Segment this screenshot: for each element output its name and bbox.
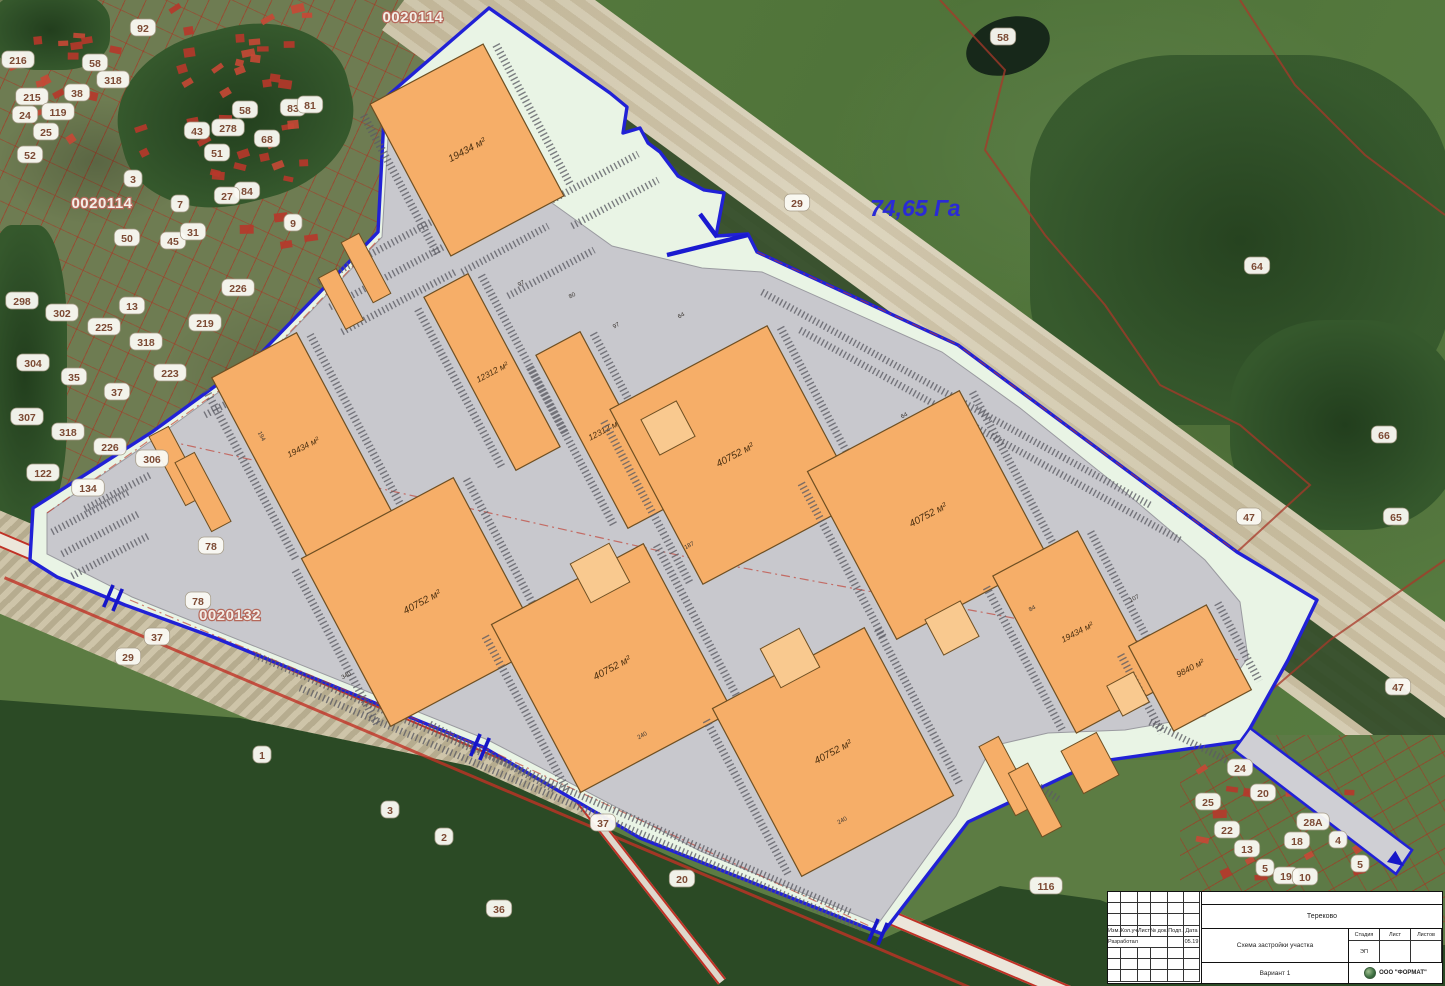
stage-grid: Стадия Лист Листов ЭП xyxy=(1349,929,1442,962)
revision-cell xyxy=(1184,892,1200,903)
parcel-number-bubble: 122 xyxy=(27,464,60,481)
parcel-number-bubble: 78 xyxy=(198,537,223,554)
parcel-number-bubble: 18 xyxy=(1284,832,1309,849)
house xyxy=(183,26,194,36)
parcel-number: 116 xyxy=(1038,881,1055,893)
house xyxy=(1245,856,1255,865)
house xyxy=(249,38,261,45)
parcel-number: 43 xyxy=(191,126,203,138)
parcel-number-bubble: 5 xyxy=(1256,859,1274,876)
house xyxy=(212,171,225,180)
revision-cell xyxy=(1138,970,1151,981)
parcel-number: 318 xyxy=(104,75,122,87)
parcel-number-bubble: 35 xyxy=(61,368,86,385)
parcel-number-bubble: 29 xyxy=(784,194,809,211)
parcel-number: 28А xyxy=(1303,817,1323,829)
parcel-number-bubble: 278 xyxy=(212,119,245,136)
house xyxy=(109,45,122,54)
house xyxy=(233,162,246,171)
revision-header: Дата xyxy=(1184,926,1200,937)
parcel-number-bubble: 47 xyxy=(1236,508,1261,525)
house xyxy=(1195,836,1209,844)
revision-cell xyxy=(1184,959,1200,970)
revision-cell xyxy=(1121,903,1138,914)
parcel-number-bubble: 28А xyxy=(1297,813,1330,830)
parcel-number: 37 xyxy=(111,387,123,399)
revision-cell xyxy=(1108,970,1121,981)
parcel-number-bubble: 226 xyxy=(222,279,255,296)
revision-cell xyxy=(1151,914,1168,925)
parcel-number-bubble: 29 xyxy=(115,648,140,665)
parcel-number-bubble: 5 xyxy=(1351,855,1369,872)
parcel-number-bubble: 37 xyxy=(144,628,169,645)
parcel-number: 24 xyxy=(1234,763,1246,775)
house xyxy=(219,87,232,99)
parcel-number: 37 xyxy=(597,818,609,830)
revision-cell xyxy=(1184,970,1200,981)
parcel-number: 226 xyxy=(101,442,119,454)
parcel-number-bubble: 119 xyxy=(42,103,75,120)
parcel-number-bubble: 20 xyxy=(1250,784,1275,801)
parcel-number-bubble: 302 xyxy=(46,304,79,321)
parcel-number-bubble: 58 xyxy=(990,28,1015,45)
revision-header: № док. xyxy=(1151,926,1168,937)
revision-header: Лист xyxy=(1138,926,1151,937)
parcel-number-bubble: 58 xyxy=(232,101,257,118)
parcel-number: 20 xyxy=(676,874,688,886)
sheet-label: Лист xyxy=(1380,929,1411,940)
parcel-number: 10 xyxy=(1299,872,1311,884)
house xyxy=(183,47,195,58)
parcel-number: 58 xyxy=(997,32,1009,44)
revision-cell xyxy=(1168,948,1184,959)
revision-cell xyxy=(1138,948,1151,959)
parcel-number-bubble: 226 xyxy=(94,438,127,455)
revision-cell xyxy=(1184,948,1200,959)
house xyxy=(181,77,193,88)
parcel-number-bubble: 58 xyxy=(82,54,107,71)
house xyxy=(290,3,305,14)
parcel-number: 9 xyxy=(290,218,296,230)
revision-cell xyxy=(1151,903,1168,914)
cadastral-quarter-label: 0020114 xyxy=(382,9,443,26)
parcel-number: 65 xyxy=(1390,512,1402,524)
parcel-number-bubble: 223 xyxy=(154,364,187,381)
parcel-number-bubble: 304 xyxy=(17,354,50,371)
house xyxy=(176,63,188,74)
variant-label: Вариант 1 xyxy=(1202,963,1349,983)
sheet-value xyxy=(1380,941,1411,962)
parcel-number: 78 xyxy=(192,596,204,608)
house xyxy=(240,225,254,234)
parcel-number: 22 xyxy=(1221,825,1233,837)
revision-cell xyxy=(1168,914,1184,925)
parcel-number: 304 xyxy=(24,358,42,370)
house xyxy=(271,160,284,171)
parcel-number-bubble: 225 xyxy=(88,318,121,335)
sheets-value xyxy=(1411,941,1442,962)
sheets-label: Листов xyxy=(1411,929,1442,940)
revision-cell xyxy=(1184,914,1200,925)
parcel-number: 278 xyxy=(219,123,237,135)
title-block-revision-grid: Изм.Кол.учЛист№ док.Подп.ДатаРазработал0… xyxy=(1108,892,1202,983)
house xyxy=(65,133,77,144)
house xyxy=(257,46,269,51)
house xyxy=(168,3,181,14)
parcel-number: 25 xyxy=(1202,797,1214,809)
parcel-number: 58 xyxy=(239,105,251,117)
house xyxy=(70,41,83,50)
house xyxy=(211,63,224,74)
parcel-number: 298 xyxy=(13,296,31,308)
parcel-number: 1 xyxy=(259,750,265,762)
parcel-number-bubble: 66 xyxy=(1371,426,1396,443)
house xyxy=(304,234,318,242)
house xyxy=(1219,867,1232,879)
house xyxy=(262,79,272,88)
parcel-number: 18 xyxy=(1291,836,1303,848)
cadastral-line xyxy=(1240,0,1445,215)
revision-cell xyxy=(1151,892,1168,903)
parcel-number-bubble: 318 xyxy=(130,333,163,350)
house xyxy=(260,13,275,25)
house xyxy=(1213,809,1227,818)
parcel-number-bubble: 13 xyxy=(1234,840,1259,857)
parcel-number-bubble: 38 xyxy=(64,84,89,101)
house xyxy=(235,34,244,43)
revision-cell xyxy=(1121,959,1138,970)
parcel-number: 13 xyxy=(126,301,138,313)
revision-cell xyxy=(1151,948,1168,959)
parcel-number: 302 xyxy=(53,308,71,320)
revision-cell xyxy=(1168,959,1184,970)
parcel-number: 84 xyxy=(241,186,253,198)
parcel-number-bubble: 25 xyxy=(1195,793,1220,810)
revision-cell xyxy=(1121,970,1138,981)
house xyxy=(1304,851,1315,860)
house xyxy=(1226,786,1238,793)
parcel-number: 318 xyxy=(59,427,77,439)
parcel-number-bubble: 52 xyxy=(17,146,42,163)
revision-cell xyxy=(1108,914,1121,925)
parcel-number-bubble: 216 xyxy=(2,51,35,68)
revision-cell xyxy=(1138,914,1151,925)
revision-cell xyxy=(1151,970,1168,981)
project-name: Тереково xyxy=(1202,905,1442,929)
parcel-number-bubble: 2 xyxy=(435,828,453,845)
revision-cell xyxy=(1121,892,1138,903)
house xyxy=(259,152,270,162)
parcel-number: 58 xyxy=(89,58,101,70)
parcel-number: 92 xyxy=(137,23,149,35)
parcel-number-bubble: 298 xyxy=(6,292,39,309)
parcel-number: 3 xyxy=(130,174,136,186)
stage-value: ЭП xyxy=(1349,941,1380,962)
parcel-number: 78 xyxy=(205,541,217,553)
house xyxy=(302,13,312,18)
house xyxy=(68,53,79,60)
revision-cell xyxy=(1121,914,1138,925)
parcel-number: 31 xyxy=(187,227,199,239)
parcel-number-bubble: 318 xyxy=(52,423,85,440)
parcel-number: 13 xyxy=(1241,844,1253,856)
revision-header: Кол.уч xyxy=(1121,926,1138,937)
parcel-number: 81 xyxy=(304,100,316,112)
parcel-number-bubble: 24 xyxy=(12,106,37,123)
parcel-number: 37 xyxy=(151,632,163,644)
house xyxy=(234,65,246,75)
parcel-number: 19 xyxy=(1280,871,1292,883)
parcel-number-bubble: 25 xyxy=(33,123,58,140)
house xyxy=(134,124,148,133)
house xyxy=(58,41,68,47)
parcel-number: 225 xyxy=(95,322,113,334)
parcel-number: 134 xyxy=(79,483,97,495)
house xyxy=(52,88,65,99)
cadastral-quarter-label: 0020132 xyxy=(199,607,261,624)
parcel-number-bubble: 4 xyxy=(1329,831,1347,848)
parcel-number-bubble: 13 xyxy=(119,297,144,314)
parcel-number-bubble: 64 xyxy=(1244,257,1269,274)
revision-cell xyxy=(1168,937,1184,948)
parcel-number-bubble: 20 xyxy=(669,870,694,887)
parcel-number: 45 xyxy=(167,236,179,248)
revision-cell xyxy=(1138,892,1151,903)
parcel-number-bubble: 3 xyxy=(124,170,142,187)
parcel-number-bubble: 10 xyxy=(1292,868,1317,885)
parcel-number: 36 xyxy=(493,904,505,916)
parcel-number: 318 xyxy=(137,337,155,349)
total-area-label: 74,65 Га xyxy=(870,195,961,221)
parcel-number: 20 xyxy=(1257,788,1269,800)
parcel-number-bubble: 27 xyxy=(214,187,239,204)
parcel-number: 35 xyxy=(68,372,80,384)
revision-cell xyxy=(1138,903,1151,914)
parcel-number-bubble: 68 xyxy=(254,130,279,147)
parcel-number: 68 xyxy=(261,134,273,146)
house xyxy=(235,59,244,67)
revision-cell xyxy=(1121,948,1138,959)
house xyxy=(250,54,261,63)
globe-icon xyxy=(1364,967,1376,979)
company-logo: ООО "ФОРМАТ" xyxy=(1349,963,1442,983)
parcel-number-bubble: 9 xyxy=(284,214,302,231)
title-block-empty-row xyxy=(1202,892,1442,905)
parcel-number: 5 xyxy=(1262,863,1268,875)
house xyxy=(237,148,251,159)
stage-label: Стадия xyxy=(1349,929,1380,940)
parcel-number-bubble: 36 xyxy=(486,900,511,917)
document-title: Схема застройки участка xyxy=(1202,929,1349,962)
parcel-number: 38 xyxy=(71,88,83,100)
parcel-number-bubble: 116 xyxy=(1030,877,1063,894)
parcel-number: 64 xyxy=(1251,261,1263,273)
parcel-number-bubble: 43 xyxy=(184,122,209,139)
revision-cell xyxy=(1108,948,1121,959)
parcel-number: 50 xyxy=(121,233,133,245)
parcel-number-bubble: 47 xyxy=(1385,678,1410,695)
parcel-number-bubble: 51 xyxy=(204,144,229,161)
parcel-number-bubble: 306 xyxy=(136,450,169,467)
house xyxy=(33,36,42,45)
revision-cell xyxy=(1108,959,1121,970)
parcel-number: 223 xyxy=(161,368,179,380)
parcel-number-bubble: 78 xyxy=(185,592,210,609)
parcel-number: 52 xyxy=(24,150,36,162)
revision-cell xyxy=(1138,959,1151,970)
revision-cell xyxy=(1151,959,1168,970)
company-name: ООО "ФОРМАТ" xyxy=(1379,970,1427,976)
house xyxy=(1344,790,1354,796)
house xyxy=(139,148,150,158)
parcel-number: 4 xyxy=(1335,835,1341,847)
house xyxy=(1196,764,1209,775)
house xyxy=(36,79,46,87)
parcel-number-bubble: 37 xyxy=(104,383,129,400)
parcel-number-bubble: 24 xyxy=(1227,759,1252,776)
parcel-number: 215 xyxy=(23,92,41,104)
parcel-number-bubble: 318 xyxy=(97,71,130,88)
parcel-number-bubble: 31 xyxy=(180,223,205,240)
parcel-number: 66 xyxy=(1378,430,1390,442)
parcel-number: 122 xyxy=(34,468,52,480)
parcel-number: 2 xyxy=(441,832,447,844)
revision-cell xyxy=(1108,903,1121,914)
parcel-number-bubble: 307 xyxy=(11,408,44,425)
parcel-number-bubble: 134 xyxy=(72,479,105,496)
developed-by-label: Разработал xyxy=(1108,937,1168,948)
cadastral-quarter-label: 0020114 xyxy=(71,195,132,212)
revision-cell xyxy=(1168,892,1184,903)
parcel-number-bubble: 81 xyxy=(297,96,322,113)
parcel-number-bubble: 1 xyxy=(253,746,271,763)
parcel-number: 307 xyxy=(18,412,36,424)
parcel-number: 119 xyxy=(50,107,67,119)
parcel-number: 5 xyxy=(1357,859,1363,871)
house xyxy=(280,240,293,249)
parcel-number: 226 xyxy=(229,283,247,295)
parcel-number-bubble: 37 xyxy=(590,814,615,831)
parcel-number: 25 xyxy=(40,127,52,139)
house xyxy=(299,159,308,166)
house xyxy=(284,41,295,48)
parcel-number: 7 xyxy=(177,199,183,211)
revision-header: Изм. xyxy=(1108,926,1121,937)
parcel-number: 29 xyxy=(791,198,803,210)
parcel-number-bubble: 22 xyxy=(1214,821,1239,838)
date-value: 05.19 xyxy=(1184,937,1200,948)
parcel-number-bubble: 215 xyxy=(16,88,49,105)
house xyxy=(283,175,294,182)
parcel-number-bubble: 219 xyxy=(189,314,222,331)
parcel-number-bubble: 65 xyxy=(1383,508,1408,525)
parcel-number-bubble: 92 xyxy=(130,19,155,36)
site-plan-map: 19434 м²12312 м²12312 м²19434 м²40752 м²… xyxy=(0,0,1445,986)
revision-header: Подп. xyxy=(1168,926,1184,937)
parcel-number: 3 xyxy=(387,805,393,817)
parcel-number-bubble: 3 xyxy=(381,801,399,818)
parcel-number: 306 xyxy=(143,454,161,466)
house xyxy=(278,79,292,90)
parcel-number: 51 xyxy=(211,148,223,160)
parcel-number: 24 xyxy=(19,110,31,122)
parcel-number: 27 xyxy=(221,191,233,203)
parcel-number-bubble: 7 xyxy=(171,195,189,212)
parcel-number: 47 xyxy=(1392,682,1404,694)
parcel-number: 219 xyxy=(196,318,214,330)
parcel-number-bubble: 50 xyxy=(114,229,139,246)
development-plan-overlay: 19434 м²12312 м²12312 м²19434 м²40752 м²… xyxy=(0,0,1445,986)
revision-cell xyxy=(1168,903,1184,914)
parcel-number: 47 xyxy=(1243,512,1255,524)
house xyxy=(287,120,299,130)
revision-cell xyxy=(1184,903,1200,914)
revision-cell xyxy=(1168,970,1184,981)
revision-cell xyxy=(1108,892,1121,903)
parcel-number: 216 xyxy=(9,55,27,67)
parcel-number: 29 xyxy=(122,652,134,664)
title-block: Изм.Кол.учЛист№ док.Подп.ДатаРазработал0… xyxy=(1107,891,1443,984)
